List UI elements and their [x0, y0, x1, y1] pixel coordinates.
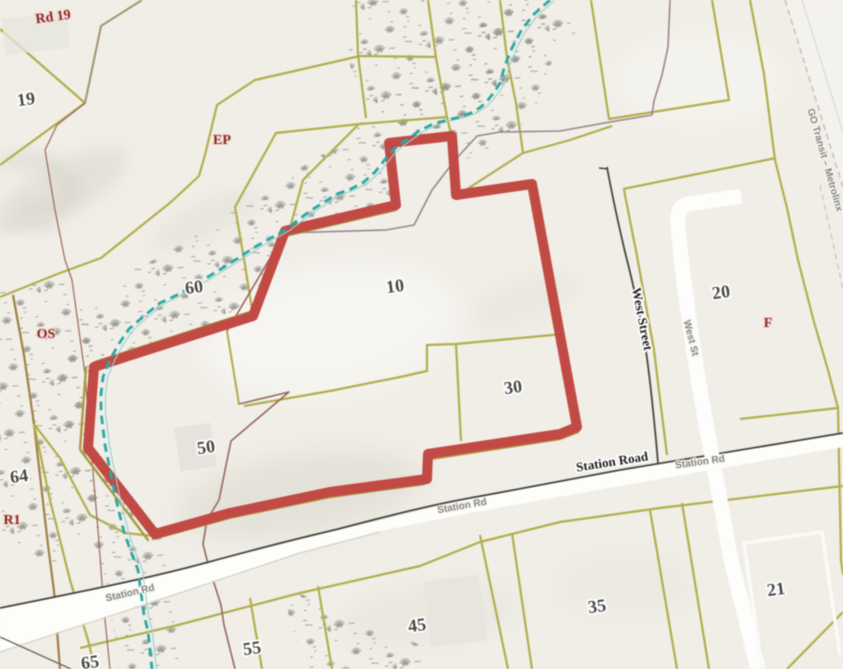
svg-text:10: 10 [385, 275, 406, 297]
svg-text:R1: R1 [3, 513, 20, 528]
svg-text:65: 65 [80, 651, 101, 669]
svg-text:55: 55 [242, 637, 263, 659]
svg-text:20: 20 [711, 281, 732, 303]
svg-text:35: 35 [587, 595, 608, 617]
svg-text:21: 21 [766, 578, 787, 600]
svg-text:OS: OS [37, 327, 56, 342]
svg-text:30: 30 [503, 376, 524, 398]
svg-text:EP: EP [213, 133, 231, 148]
svg-text:64: 64 [9, 465, 30, 487]
svg-text:19: 19 [16, 88, 37, 110]
svg-text:45: 45 [407, 614, 428, 636]
svg-text:F: F [764, 316, 773, 331]
svg-text:60: 60 [184, 276, 205, 298]
svg-text:50: 50 [196, 436, 217, 458]
